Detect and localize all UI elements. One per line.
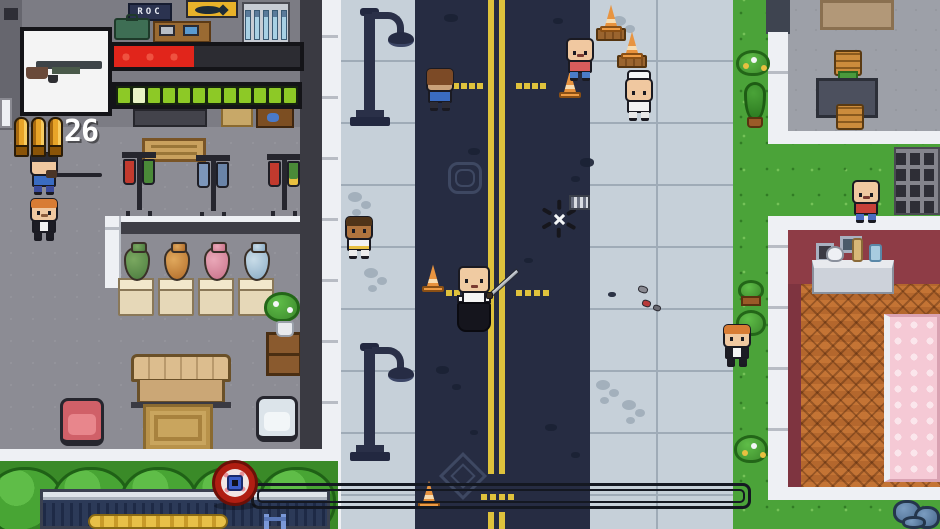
bottle-blue — [869, 244, 882, 262]
leg — [46, 186, 54, 195]
pedestrian-suit-right — [721, 324, 753, 367]
laptop-blue — [183, 25, 199, 36]
pedestrian-white-shirt — [343, 216, 375, 259]
mouth — [577, 54, 584, 57]
eye — [37, 211, 40, 215]
mouth — [471, 285, 478, 288]
bomb-marker-icon — [212, 460, 259, 509]
game-viewport[interactable]: ROC — [0, 0, 940, 529]
head — [426, 68, 454, 92]
fish-tail — [217, 4, 228, 15]
eye — [48, 211, 51, 215]
legs — [428, 102, 452, 111]
leg — [868, 214, 876, 223]
lamp-head — [388, 367, 414, 382]
rug — [143, 404, 213, 452]
leg — [34, 186, 42, 195]
side-table — [812, 260, 894, 294]
mouth — [41, 214, 48, 217]
bottle-tan — [852, 238, 863, 262]
cone-base — [559, 92, 581, 98]
crosshair-dash — [542, 222, 552, 230]
couch-seat — [137, 380, 225, 404]
road-stain — [571, 452, 580, 458]
street-lamp — [348, 341, 418, 463]
divider-wall — [105, 216, 322, 234]
white-box — [0, 98, 12, 128]
armchair-red — [60, 398, 104, 446]
road-dash — [469, 83, 475, 89]
rifle-stock — [46, 170, 57, 178]
manhole-cover — [448, 162, 482, 194]
hair — [346, 217, 372, 226]
couch-back — [131, 354, 231, 382]
work-bench — [133, 109, 207, 127]
robe — [457, 302, 491, 332]
smudge-blob — [626, 417, 635, 424]
eye — [632, 91, 635, 95]
energy-segment — [148, 88, 160, 103]
suit-front — [40, 222, 48, 231]
road-dash — [540, 83, 546, 89]
eye — [465, 279, 468, 283]
road-dash — [543, 290, 549, 296]
eye — [363, 229, 366, 233]
clothes-rack-3 — [267, 154, 301, 216]
ammo-count: 26 — [64, 114, 98, 149]
eye — [480, 279, 483, 283]
energy-segment — [133, 88, 145, 103]
road-dash — [534, 290, 540, 296]
head — [566, 38, 594, 62]
road-stain — [553, 18, 563, 24]
tree-pot — [747, 117, 763, 128]
hair — [31, 199, 57, 208]
energy-segment — [224, 88, 236, 103]
energy-segment — [284, 88, 296, 103]
road-dash — [532, 83, 538, 89]
office-chair-bottom — [836, 104, 864, 130]
leg — [349, 250, 357, 259]
shotgun-stock — [26, 67, 48, 79]
leg — [34, 232, 42, 241]
teapot — [826, 246, 844, 262]
clothes-rack-2 — [196, 155, 230, 217]
objective-progress-bar — [251, 483, 751, 509]
road-stain — [452, 384, 461, 390]
leg — [727, 358, 735, 367]
traffic-cone — [599, 4, 623, 34]
leg — [582, 72, 590, 81]
crate-tan — [221, 107, 253, 127]
smudge-blob — [361, 201, 371, 209]
smudge-blob — [352, 209, 361, 216]
smudge-blob — [368, 285, 377, 292]
bedroom-wall-bottom — [768, 487, 940, 500]
office-pillar — [766, 0, 790, 34]
building-wall-white — [322, 0, 338, 462]
smudge-blob — [635, 409, 645, 417]
blue-item — [267, 113, 279, 122]
head — [852, 180, 880, 204]
road-dash — [525, 290, 531, 296]
energy-segment — [193, 88, 205, 103]
lamp-base — [350, 452, 390, 461]
pedestrian-pink-shirt — [564, 38, 596, 81]
energy-segment — [163, 88, 175, 103]
pedestrian-chef — [623, 70, 655, 121]
ladder — [262, 514, 288, 529]
bedroom-wall-strip — [788, 284, 801, 489]
legs — [725, 358, 749, 367]
rifle-icon — [54, 173, 102, 177]
road-stain — [436, 366, 449, 374]
sidewalk-smudge — [622, 400, 652, 428]
pedestrian-suit-left — [28, 198, 60, 241]
fish-picture — [186, 0, 238, 18]
cabinet — [266, 332, 302, 376]
lamp-head — [388, 32, 414, 47]
energy-segment — [239, 88, 251, 103]
legs — [854, 214, 878, 223]
road-dash — [516, 290, 522, 296]
legs — [32, 232, 56, 241]
energy-segment — [269, 88, 281, 103]
storage-lockers — [894, 147, 940, 215]
road-stain — [444, 14, 458, 22]
sidewalk-smudge — [364, 268, 394, 296]
briefcase — [114, 18, 150, 40]
lamp-base — [350, 117, 390, 126]
leg — [739, 358, 747, 367]
eye — [584, 51, 587, 55]
energy-segment — [178, 88, 190, 103]
health-bar — [110, 42, 304, 71]
road-dash — [524, 83, 530, 89]
smudge-blob — [364, 268, 378, 278]
laptop-gray — [159, 25, 175, 36]
eye — [730, 337, 733, 341]
lane-line — [488, 0, 494, 474]
crosshair-dash — [557, 200, 561, 210]
leg — [629, 112, 637, 121]
road-dash — [477, 83, 483, 89]
head — [345, 216, 373, 240]
leg — [361, 250, 369, 259]
leg — [641, 112, 649, 121]
left-wall-strip — [0, 0, 22, 130]
weapon-panel — [20, 27, 112, 116]
legs — [568, 72, 592, 81]
manhole-ring — [455, 169, 475, 187]
lane-line — [488, 512, 494, 529]
eye — [741, 337, 744, 341]
road-dash — [446, 290, 452, 296]
bedroom-wall-left — [768, 216, 788, 489]
dark-item — [4, 8, 18, 20]
bullet-icon — [14, 117, 29, 157]
leg — [856, 214, 864, 223]
plant-pot — [741, 296, 761, 306]
legs — [32, 186, 56, 195]
rock-3 — [902, 516, 926, 529]
desk-laptops — [153, 21, 211, 43]
vase-pedestal — [118, 278, 154, 316]
smudge-blob — [600, 397, 609, 404]
leg — [46, 232, 54, 241]
pedestrian-brown-mop — [424, 68, 456, 111]
lamp-arm — [372, 347, 404, 369]
cone-base — [621, 53, 643, 59]
armchair-white — [256, 396, 298, 442]
ammo-shells — [14, 117, 63, 157]
hair — [427, 69, 453, 85]
leg — [430, 102, 438, 111]
bullet-icon — [48, 117, 63, 157]
smudge-blob — [622, 400, 636, 410]
eye — [870, 193, 873, 197]
energy-bar — [112, 82, 302, 109]
suit-front — [733, 348, 741, 357]
road-stain — [571, 176, 580, 182]
head — [30, 198, 58, 222]
head — [625, 78, 653, 102]
energy-segment — [118, 88, 130, 103]
mouth — [863, 196, 870, 199]
eye — [859, 193, 862, 197]
road-stain — [524, 258, 533, 263]
road-stain — [545, 424, 557, 431]
bonsai-plant — [264, 292, 300, 322]
shotgun-pump — [52, 67, 80, 74]
lane-line — [499, 0, 505, 474]
road-dash — [461, 83, 467, 89]
belt — [349, 246, 369, 249]
road-stain — [608, 292, 616, 297]
clothes-rack-1 — [122, 152, 156, 216]
traffic-cone — [620, 31, 644, 61]
street-lamp — [348, 6, 418, 128]
sidewalk-right — [590, 0, 733, 529]
head — [723, 324, 751, 348]
lane-line — [499, 512, 505, 529]
awning-yellow — [88, 514, 228, 529]
traffic-cone — [421, 264, 445, 294]
white-pot — [276, 321, 294, 337]
roc-sign-label: ROC — [137, 7, 162, 17]
crosshair-dash — [557, 228, 561, 238]
bush-flowers-bottom — [734, 435, 768, 463]
crosshair-dash — [542, 208, 552, 216]
crosshair-dash — [566, 222, 576, 230]
katana-grip — [486, 292, 493, 299]
hair — [724, 325, 750, 334]
leg — [570, 72, 578, 81]
player-swordsman — [456, 266, 492, 332]
bush-flowers-top — [736, 50, 770, 76]
objective-progress-inner — [257, 489, 745, 503]
health-bar-fill — [114, 46, 194, 67]
legs — [627, 112, 651, 121]
gunman-blue — [28, 152, 60, 195]
energy-segment — [254, 88, 266, 103]
pedestrian-red-shirt-bald — [850, 180, 882, 223]
eye — [643, 91, 646, 95]
office-rug — [820, 0, 894, 30]
smudge-blob — [609, 389, 619, 397]
bed — [884, 314, 940, 482]
road-dash — [516, 83, 522, 89]
vase-pedestal — [158, 278, 194, 316]
smudge-blob — [377, 277, 387, 285]
leg — [442, 102, 450, 111]
bullet-icon — [31, 117, 46, 157]
eye — [352, 229, 355, 233]
smudge-blob — [596, 380, 610, 390]
office-wall-bottom — [768, 131, 940, 144]
cone-base — [600, 26, 622, 32]
smudge-blob — [348, 192, 362, 202]
head — [458, 266, 490, 293]
legs — [347, 250, 371, 259]
road-stain — [470, 430, 478, 435]
briefcase-handle — [126, 14, 138, 21]
eye — [573, 51, 576, 55]
office-wall-left — [768, 32, 788, 132]
test-tube-rack — [242, 2, 290, 44]
cypress-tree — [744, 82, 766, 120]
road-stain — [580, 158, 594, 167]
road-stain — [468, 148, 480, 155]
energy-segment — [208, 88, 220, 103]
shotgun-grip — [48, 75, 58, 83]
lamp-arm — [372, 12, 404, 34]
cone-base — [422, 286, 444, 292]
ammo-clip-icon — [569, 195, 590, 210]
vase-pedestal — [198, 278, 234, 316]
